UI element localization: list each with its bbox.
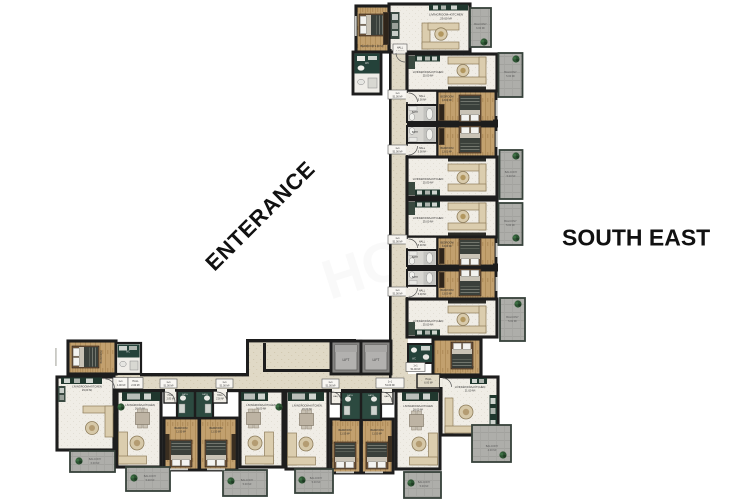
svg-text:LIVINGROOM+KITCHEN: LIVINGROOM+KITCHEN [413,216,444,220]
svg-text:51.00 M²: 51.00 M² [411,368,421,371]
svg-text:29.00 M²: 29.00 M² [440,17,452,21]
svg-text:6.00 M²: 6.00 M² [424,381,433,384]
svg-text:25.00 M²: 25.00 M² [423,323,434,327]
svg-text:1+1: 1+1 [413,365,418,368]
svg-text:LIVINGROOM+KITCHEN: LIVINGROOM+KITCHEN [413,70,444,74]
svg-text:BATH: BATH [412,111,418,114]
svg-text:6.00 M²: 6.00 M² [476,26,485,30]
svg-text:BATH: BATH [412,276,418,279]
svg-text:BATH: BATH [368,394,374,397]
svg-text:BEDROOM 9.00 M²: BEDROOM 9.00 M² [361,44,384,48]
svg-text:BATH: BATH [202,393,208,396]
svg-text:5.00 M²: 5.00 M² [506,223,515,227]
svg-text:BATH: BATH [182,393,188,396]
svg-text:51.00 M²: 51.00 M² [393,293,403,296]
svg-text:5.00 M²: 5.00 M² [243,482,252,486]
svg-text:BALCONY: BALCONY [504,70,517,74]
svg-text:BALCONY: BALCONY [310,476,323,480]
svg-text:BALCONY: BALCONY [506,315,519,319]
svg-text:1+1: 1+1 [388,380,393,383]
svg-text:HALL: HALL [217,394,223,397]
svg-text:1+1: 1+1 [222,381,227,384]
svg-text:5.00 M²: 5.00 M² [420,484,429,488]
svg-text:4.00 M²: 4.00 M² [488,448,497,452]
svg-text:LIVINGROOM+KITCHEN: LIVINGROOM+KITCHEN [455,385,486,389]
svg-text:51.00 M²: 51.00 M² [164,385,174,388]
svg-text:5.00 M²: 5.00 M² [312,480,321,484]
svg-text:BALCONY: BALCONY [474,22,487,26]
svg-text:1+1: 1+1 [166,381,171,384]
svg-text:SOUTH EAST: SOUTH EAST [562,225,710,251]
svg-text:1+1: 1+1 [395,289,400,292]
svg-text:29.00 M²: 29.00 M² [82,388,92,392]
svg-text:25.00 M²: 25.00 M² [423,220,434,224]
svg-text:BALCONY: BALCONY [504,219,517,223]
svg-text:13.00 M²: 13.00 M² [442,150,452,153]
svg-text:LIVINGROOM+KITCHEN: LIVINGROOM+KITCHEN [413,177,444,181]
svg-text:WC: WC [412,359,416,361]
svg-text:5.00 M²: 5.00 M² [508,319,517,323]
svg-text:WC: WC [365,62,369,65]
svg-text:BALCONY: BALCONY [89,457,102,461]
svg-text:5.00 M²: 5.00 M² [418,150,427,153]
svg-text:BEDROOM: BEDROOM [100,351,103,364]
svg-text:51.00 M²: 51.00 M² [393,241,403,244]
svg-text:1+1: 1+1 [395,237,400,240]
svg-text:BALCONY: BALCONY [486,444,499,448]
svg-text:LIVINGROOM+KITCHEN: LIVINGROOM+KITCHEN [125,403,155,407]
svg-text:1+1: 1+1 [395,147,400,150]
svg-text:5.00 M²: 5.00 M² [146,478,155,482]
svg-text:51.00 M²: 51.00 M² [116,384,126,387]
svg-text:HALL: HALL [333,395,339,398]
svg-text:25.00 M²: 25.00 M² [423,74,434,78]
svg-text:51.00 M²: 51.00 M² [385,384,395,387]
svg-text:HALL: HALL [132,380,139,383]
svg-text:11.50 M²: 11.50 M² [176,430,186,433]
svg-text:LIVINGROOM+KITCHEN: LIVINGROOM+KITCHEN [403,404,433,408]
svg-text:13.00 M²: 13.00 M² [442,99,452,102]
svg-text:BATH: BATH [347,394,353,397]
svg-text:LIVINGROOM+KITCHEN: LIVINGROOM+KITCHEN [72,385,102,389]
svg-text:21.00 M²: 21.00 M² [465,389,476,393]
svg-text:BALCONY: BALCONY [241,478,254,482]
svg-text:11.50 M²: 11.50 M² [340,432,350,435]
svg-text:LIVINGROOM+KITCHEN: LIVINGROOM+KITCHEN [413,319,444,323]
svg-text:5.00 M²: 5.00 M² [507,174,516,178]
svg-text:BALCONY: BALCONY [418,480,431,484]
svg-text:51.00 M²: 51.00 M² [220,385,230,388]
svg-text:BEDROOM 8.50 M²: BEDROOM 8.50 M² [452,366,474,369]
svg-text:5.00 M²: 5.00 M² [418,244,427,247]
svg-text:WC: WC [126,352,130,354]
svg-text:BALCONY: BALCONY [505,170,518,174]
svg-text:LIFT: LIFT [343,358,350,362]
svg-text:5.00 M²: 5.00 M² [418,293,427,296]
svg-text:BALCONY: BALCONY [144,474,157,478]
svg-text:6.00 M²: 6.00 M² [91,461,100,465]
svg-text:11.50 M²: 11.50 M² [372,432,382,435]
svg-text:51.00 M²: 51.00 M² [326,385,336,388]
svg-text:2.00 M²: 2.00 M² [216,397,224,400]
svg-text:LIVINGROOM+KITCHEN: LIVINGROOM+KITCHEN [246,403,276,407]
svg-text:25.00 M²: 25.00 M² [423,181,434,185]
svg-text:5.00 M²: 5.00 M² [506,74,515,78]
svg-text:BATH: BATH [412,256,418,259]
svg-text:51.00 M²: 51.00 M² [393,96,403,99]
svg-text:2.00 M²: 2.00 M² [167,397,175,400]
svg-text:13.00 M²: 13.00 M² [442,245,452,248]
svg-text:1+1: 1+1 [328,381,333,384]
svg-text:LIFT: LIFT [373,358,380,362]
svg-text:5.00 M²: 5.00 M² [418,98,427,101]
svg-text:LIVINGROOM+KITCHEN: LIVINGROOM+KITCHEN [292,404,322,408]
svg-text:1+1: 1+1 [118,380,123,383]
svg-text:1+1: 1+1 [395,92,400,95]
svg-text:13.00 M²: 13.00 M² [442,292,452,295]
svg-text:2.00 M²: 2.00 M² [131,384,140,387]
svg-text:51.00 M²: 51.00 M² [393,151,403,154]
svg-text:BATH: BATH [412,131,418,134]
svg-text:11.50 M²: 11.50 M² [211,430,221,433]
